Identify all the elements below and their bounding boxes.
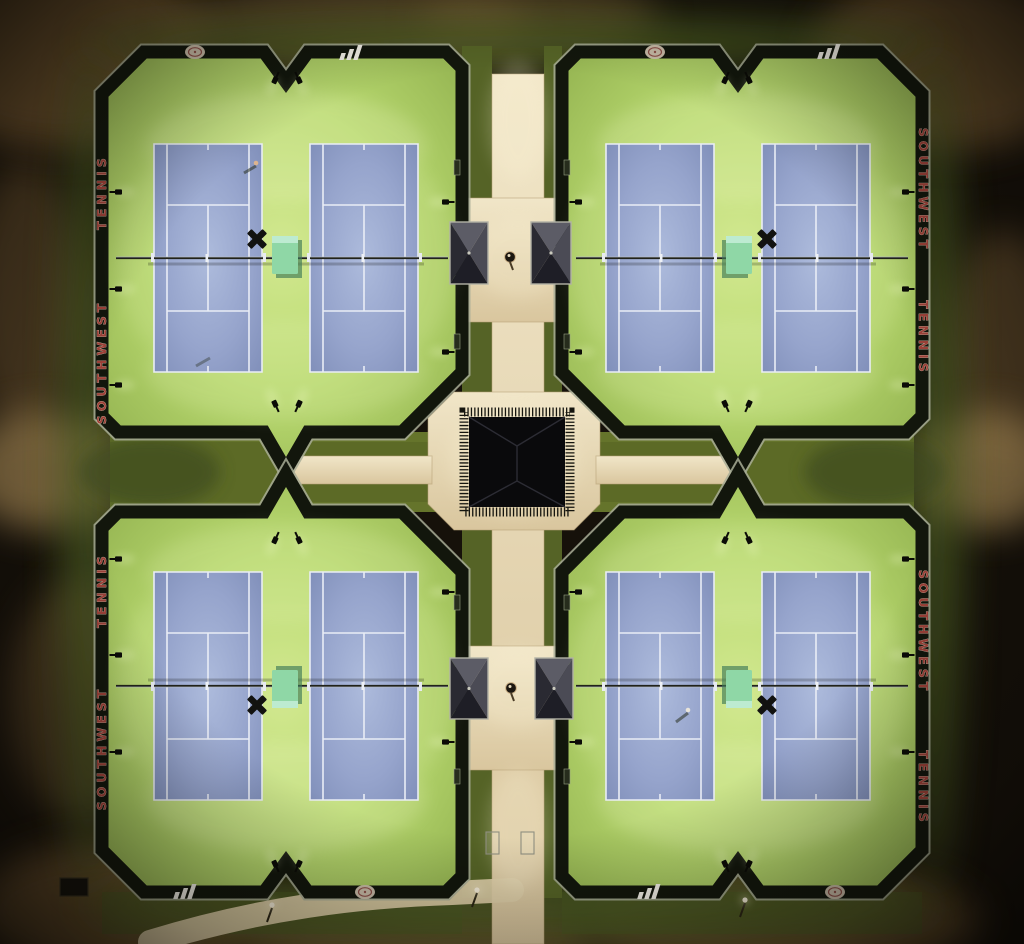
net-post [602,253,605,262]
net-post [419,253,422,262]
walkway-glow [488,770,548,890]
net-center-strap [660,682,663,690]
gate-frame [486,832,499,854]
net-post [151,253,154,262]
net-center-strap [816,682,819,690]
player [686,708,691,713]
enclosure-upper-right [562,52,922,470]
net-post [307,253,310,262]
walkway-east-arm [596,456,744,484]
net-center-strap [660,254,663,262]
net-post [758,253,761,262]
aerial-tennis-complex-photo: TENNISSOUTHWESTTENNISSOUTHWESTSOUTHWESTT… [0,0,1024,944]
banner-west-lower-word-lower: SOUTHWEST [94,686,109,811]
net-center-strap [816,254,819,262]
enclosure-lower-left [102,474,462,892]
banner-east-lower-word-upper: SOUTHWEST [916,570,931,695]
gazebo-apex [552,687,555,690]
gazebo-apex [467,251,470,254]
player [254,161,259,166]
net-post [602,682,605,691]
net-post [307,682,310,691]
fence-gate [564,595,570,610]
walkway-glow [488,60,548,180]
gazebo [450,222,488,284]
net-post [714,682,717,691]
gazebo [535,658,573,719]
screenshot-root: TENNISSOUTHWESTTENNISSOUTHWESTSOUTHWESTT… [0,0,1024,944]
enclosure-lower-right [562,474,922,892]
net-center-strap [206,682,209,690]
central-pavilion [464,412,570,512]
fence-gate [454,160,460,175]
enclosure-upper-left [102,52,462,470]
net-post [419,682,422,691]
gate-frame [521,832,534,854]
bench-roof-highlight [726,236,752,243]
net-center-strap [362,682,365,690]
light-pole [742,897,747,902]
gazebo [450,658,488,719]
fence-gate [564,334,570,349]
net-post [758,682,761,691]
banner-east-lower-word-lower: TENNIS [916,750,931,826]
gazebo-apex [549,251,552,254]
gazebo [531,222,571,284]
net-center-strap [206,254,209,262]
club-crest-logo [355,885,375,899]
club-crest-logo [645,45,665,59]
banner-west-upper-word-lower: SOUTHWEST [94,300,109,425]
utility-box [60,878,88,896]
net-post [263,253,266,262]
bench-roof-highlight [272,701,298,708]
bench-roof-highlight [726,701,752,708]
net-post [870,253,873,262]
walkway-west-arm [282,456,432,484]
bench-roof-highlight [272,236,298,243]
fence-gate [454,595,460,610]
fence-gate [454,334,460,349]
club-crest-logo [825,885,845,899]
gazebo-apex [467,687,470,690]
banner-west-upper-word-upper: TENNIS [94,154,109,230]
net-post [714,253,717,262]
fence-gate [564,769,570,784]
net-post [870,682,873,691]
fence-gate [454,769,460,784]
banner-west-lower-word-upper: TENNIS [94,552,109,628]
banner-east-upper-word-lower: TENNIS [916,300,931,376]
net-post [263,682,266,691]
light-pole [269,902,274,907]
club-crest-logo [185,45,205,59]
light-pole [474,887,479,892]
net-center-strap [362,254,365,262]
net-post [151,682,154,691]
banner-east-upper-word-upper: SOUTHWEST [916,128,931,253]
fence-gate [564,160,570,175]
photo-canvas: TENNISSOUTHWESTTENNISSOUTHWESTSOUTHWESTT… [0,0,1024,944]
